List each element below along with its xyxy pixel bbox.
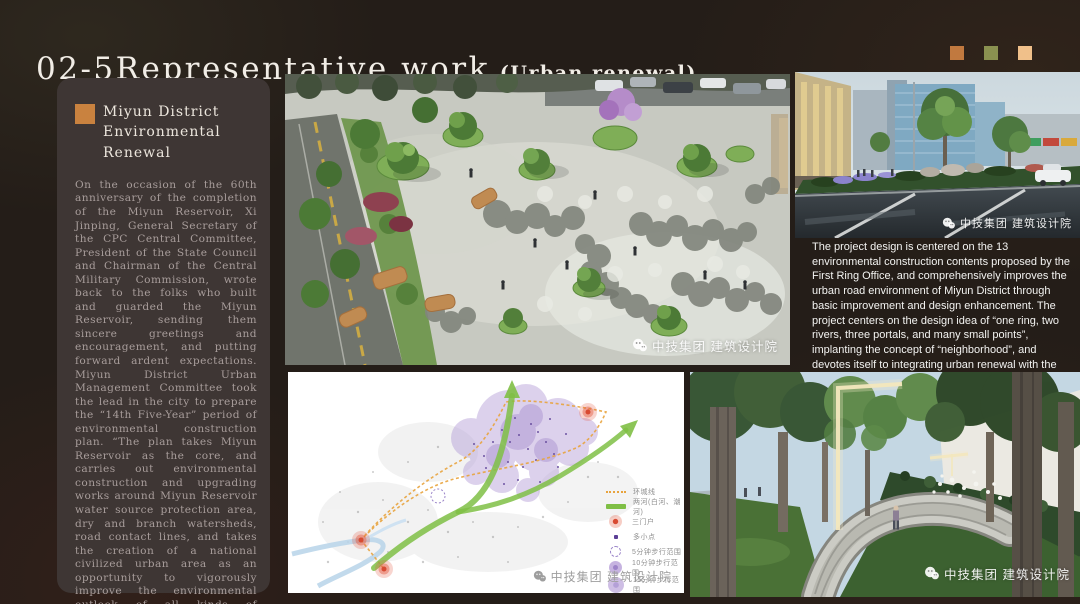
watermark: 中技集团 建筑设计院 — [533, 568, 672, 585]
light-pole — [913, 82, 915, 172]
watermark: 中技集团 建筑设计院 — [942, 215, 1072, 231]
palette-squares — [950, 46, 1032, 60]
project-intro-paragraph: On the occasion of the 60th anniversary … — [75, 179, 257, 604]
street-rendering: 中技集团 建筑设计院 — [795, 72, 1080, 238]
legend-row: 三门户 — [606, 514, 684, 529]
orange-bullet-icon — [75, 104, 95, 124]
greenway-rendering: 中技集团 建筑设计院 — [690, 372, 1080, 597]
wechat-icon — [924, 566, 939, 581]
watermark: 中技集团 建筑设计院 — [924, 564, 1070, 583]
dashed-circle-swatch — [610, 546, 621, 557]
palette-square-tan — [1018, 46, 1032, 60]
dotted-line-swatch — [606, 491, 626, 493]
watermark: 中技集团 建筑设计院 — [632, 336, 778, 355]
legend-row: 多小点 — [606, 529, 684, 544]
heading-line-1: Miyun District — [103, 102, 256, 122]
heading-line-2: Environmental Renewal — [103, 122, 256, 163]
aerial-plaza-scene — [285, 74, 790, 365]
palette-square-orange — [950, 46, 964, 60]
watermark-text: 中技集团 建筑设计院 — [551, 568, 672, 585]
aerial-plaza-rendering: 中技集团 建筑设计院 — [285, 74, 790, 365]
watermark-text: 中技集团 建筑设计院 — [652, 336, 778, 355]
slide-canvas: 02-5Representative work(Urban renewal) M… — [0, 0, 1080, 604]
planning-map: 环城线 两河(白河、潮河) 三门户 多小点 5分钟步行范围 10分钟步行范围 — [288, 372, 684, 593]
project-info-panel: Miyun District Environmental Renewal On … — [57, 78, 270, 593]
wechat-icon — [533, 570, 546, 583]
portal-dot-swatch — [609, 515, 622, 528]
street-scene — [795, 72, 1080, 238]
small-dot-swatch — [614, 535, 618, 539]
watermark-text: 中技集团 建筑设计院 — [960, 215, 1072, 231]
legend-row: 两河(白河、潮河) — [606, 499, 684, 514]
watermark-text: 中技集团 建筑设计院 — [944, 564, 1070, 583]
project-heading: Miyun District Environmental Renewal — [75, 102, 256, 163]
palette-square-green — [984, 46, 998, 60]
wechat-icon — [632, 338, 647, 353]
green-bar-swatch — [606, 504, 626, 509]
project-heading-text: Miyun District Environmental Renewal — [103, 102, 256, 163]
wechat-icon — [942, 217, 955, 230]
